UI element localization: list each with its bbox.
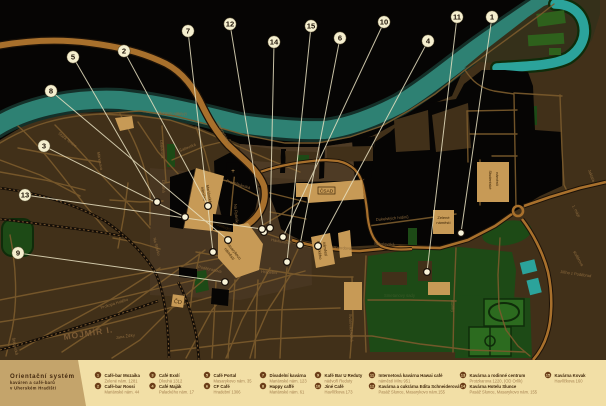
svg-text:9: 9 <box>16 249 20 258</box>
svg-text:Orientační systém: Orientační systém <box>10 373 75 380</box>
svg-text:2: 2 <box>122 47 126 56</box>
svg-text:14: 14 <box>461 384 466 389</box>
svg-text:kaváren a café-barů: kaváren a café-barů <box>10 380 55 385</box>
svg-text:+: + <box>231 168 235 175</box>
svg-text:10: 10 <box>380 18 388 27</box>
svg-text:Mariánské nám. 44: Mariánské nám. 44 <box>105 390 141 395</box>
svg-text:náměstí: náměstí <box>436 220 451 225</box>
svg-text:Pasáž Slunce, Masarykovo nám.1: Pasáž Slunce, Masarykovo nám.155 <box>379 390 446 395</box>
svg-text:Café Maják: Café Maják <box>159 384 182 389</box>
svg-text:7: 7 <box>186 27 190 36</box>
svg-text:13: 13 <box>461 373 466 378</box>
svg-text:Studentské: Studentské <box>488 171 492 190</box>
svg-text:6: 6 <box>338 34 342 43</box>
svg-text:Hradební 1306: Hradební 1306 <box>214 390 242 395</box>
svg-text:Havlíčkova 173: Havlíčkova 173 <box>325 390 354 395</box>
svg-text:Café-bar Mozaika: Café-bar Mozaika <box>105 373 141 378</box>
svg-text:náměstí: náměstí <box>495 172 499 186</box>
svg-text:Havlíčkova 160: Havlíčkova 160 <box>555 379 584 384</box>
svg-text:Jiné Café: Jiné Café <box>325 384 345 389</box>
svg-text:Kavárna Hotelu Slunce: Kavárna Hotelu Slunce <box>470 384 517 389</box>
svg-text:Kavárna a cukrárna Edita Schne: Kavárna a cukrárna Edita Schneiderová <box>379 384 461 389</box>
svg-text:10: 10 <box>316 384 321 389</box>
svg-text:Palackého nám. 17: Palackého nám. 17 <box>159 390 195 395</box>
svg-text:Sokolovská: Sokolovská <box>374 241 395 247</box>
svg-text:3: 3 <box>42 142 46 151</box>
svg-text:Café Exslí: Café Exslí <box>159 373 180 378</box>
svg-text:Café-bar Rossi: Café-bar Rossi <box>105 384 135 389</box>
svg-text:8: 8 <box>49 87 53 96</box>
svg-text:12: 12 <box>370 384 375 389</box>
svg-text:13: 13 <box>21 191 29 200</box>
svg-text:15: 15 <box>546 373 551 378</box>
svg-text:Pasáž Slunce, Masarykovo nám.: Pasáž Slunce, Masarykovo nám. 155 <box>470 390 538 395</box>
svg-text:v Uherském Hradišti: v Uherském Hradišti <box>10 386 56 391</box>
svg-text:Internetová kavárna Hawai café: Internetová kavárna Hawai café <box>379 373 444 378</box>
svg-text:Happy caffé: Happy caffé <box>270 384 295 389</box>
svg-text:11: 11 <box>453 13 462 22</box>
svg-text:Café Portal: Café Portal <box>214 373 237 378</box>
svg-text:ČD: ČD <box>173 298 182 306</box>
svg-text:Dlouhá: Dlouhá <box>161 180 166 194</box>
svg-text:Kavárna Kovak: Kavárna Kovak <box>555 373 587 378</box>
svg-text:Všehrdova: Všehrdova <box>332 245 352 251</box>
svg-text:Smetanovy sady: Smetanovy sady <box>384 293 416 298</box>
svg-text:14: 14 <box>270 38 279 47</box>
svg-text:Mariánské nám. 61: Mariánské nám. 61 <box>270 390 306 395</box>
svg-text:CF Café: CF Café <box>214 384 231 389</box>
svg-text:Kavárna a rodinné centrum: Kavárna a rodinné centrum <box>470 373 526 378</box>
svg-text:Kafé Bar U Reduty: Kafé Bar U Reduty <box>325 373 363 378</box>
svg-text:ČSAD: ČSAD <box>320 187 334 194</box>
svg-text:Divadelní kavárna: Divadelní kavárna <box>270 373 307 378</box>
svg-text:12: 12 <box>226 20 234 29</box>
svg-text:15: 15 <box>307 22 316 31</box>
svg-text:Stonky: Stonky <box>450 300 456 312</box>
